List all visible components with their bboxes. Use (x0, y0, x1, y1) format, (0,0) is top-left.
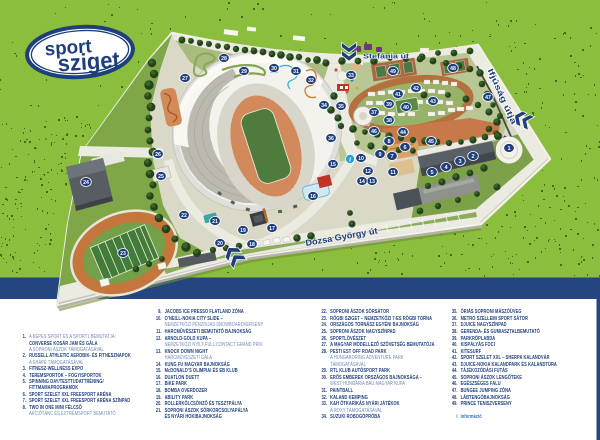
svg-text:3: 3 (458, 159, 461, 165)
svg-text:22: 22 (181, 213, 187, 219)
svg-text:25: 25 (158, 174, 164, 180)
svg-text:29: 29 (241, 69, 247, 75)
svg-text:6: 6 (403, 145, 406, 151)
svg-text:42: 42 (413, 86, 419, 92)
svg-text:44: 44 (400, 130, 406, 136)
svg-text:39: 39 (386, 102, 392, 108)
svg-text:35: 35 (338, 104, 344, 110)
svg-text:11: 11 (390, 170, 396, 176)
svg-text:17: 17 (269, 226, 275, 232)
svg-text:43: 43 (430, 99, 436, 105)
svg-text:27: 27 (182, 76, 188, 82)
svg-text:8: 8 (387, 139, 390, 145)
svg-text:15: 15 (330, 162, 336, 168)
svg-text:i: i (349, 156, 351, 163)
svg-text:49: 49 (390, 69, 396, 75)
svg-text:26: 26 (155, 152, 161, 158)
svg-text:38: 38 (386, 118, 392, 124)
svg-text:9: 9 (378, 152, 381, 158)
svg-text:sziget: sziget (57, 46, 121, 76)
svg-text:41: 41 (395, 92, 401, 98)
svg-text:48: 48 (450, 66, 456, 72)
svg-text:34: 34 (321, 103, 327, 109)
svg-text:47: 47 (485, 95, 491, 101)
svg-text:21: 21 (212, 219, 218, 225)
svg-text:32: 32 (308, 78, 314, 84)
svg-text:46: 46 (371, 129, 377, 135)
svg-text:37: 37 (371, 110, 377, 116)
svg-text:7: 7 (390, 154, 393, 160)
svg-text:31: 31 (293, 69, 299, 75)
svg-text:45: 45 (428, 139, 434, 145)
svg-text:13: 13 (369, 179, 375, 185)
svg-text:1: 1 (507, 146, 510, 152)
svg-text:28: 28 (221, 56, 227, 62)
svg-text:10: 10 (358, 156, 364, 162)
svg-text:18: 18 (249, 242, 255, 248)
svg-text:30: 30 (271, 66, 277, 72)
svg-text:19: 19 (240, 228, 246, 234)
svg-text:14: 14 (359, 179, 365, 185)
svg-text:33: 33 (348, 73, 354, 79)
svg-text:36: 36 (328, 136, 334, 142)
svg-text:20: 20 (217, 241, 223, 247)
svg-text:24: 24 (83, 180, 89, 186)
svg-text:Stefánia út: Stefánia út (363, 52, 410, 61)
svg-text:23: 23 (120, 251, 126, 257)
svg-text:40: 40 (403, 105, 409, 111)
svg-text:5: 5 (430, 170, 433, 176)
svg-text:12: 12 (365, 169, 371, 175)
svg-text:2: 2 (471, 154, 474, 160)
svg-text:16: 16 (310, 194, 316, 200)
